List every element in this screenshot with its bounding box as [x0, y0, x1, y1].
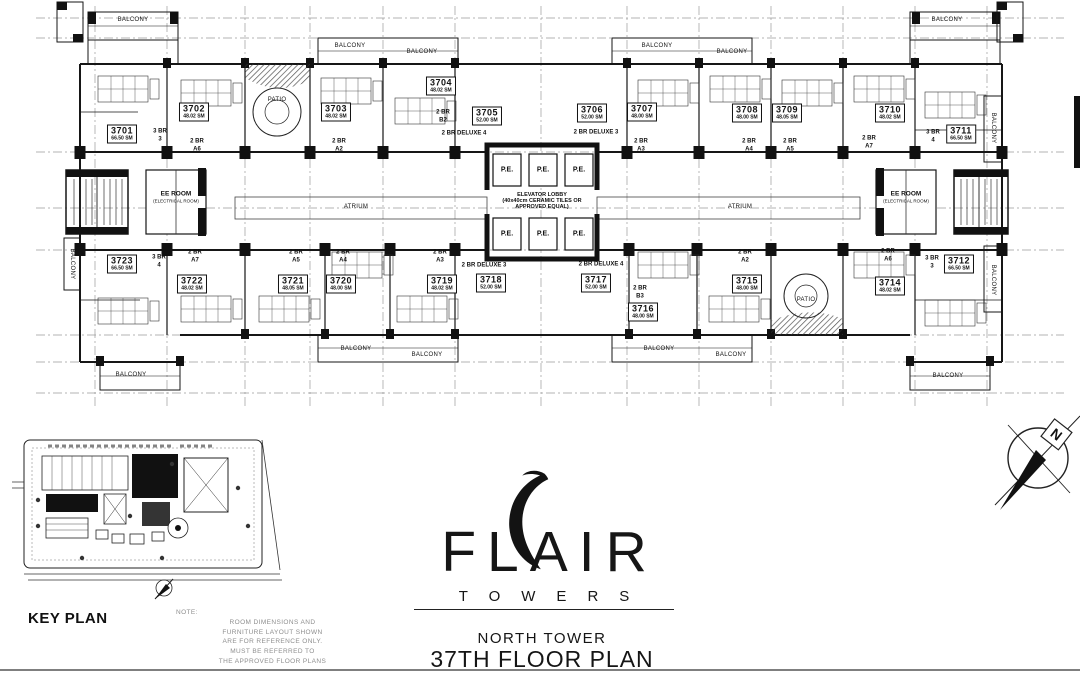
key-plan-title: KEY PLAN — [28, 610, 108, 627]
north-compass: N — [995, 416, 1080, 510]
brand-rule — [414, 609, 674, 610]
floor-title: 37TH FLOOR PLAN — [402, 646, 682, 673]
note-line-2: ROOM DIMENSIONS AND — [180, 618, 365, 628]
note-line-6: THE APPROVED FLOOR PLANS — [180, 657, 365, 667]
brand-subname: TOWERS — [414, 588, 674, 605]
stairs-right — [954, 170, 1008, 234]
note-line-1: NOTE: — [176, 608, 365, 618]
key-plan-north-arrow — [155, 579, 173, 599]
elevator-lobby-line3: APPROVED EQUAL) — [502, 204, 581, 210]
general-note: NOTE:ROOM DIMENSIONS ANDFURNITURE LAYOUT… — [180, 608, 365, 667]
key-plan-map — [12, 440, 282, 599]
ee-room-left — [146, 168, 206, 236]
floor-plan-sheet: N 370166.50 SM3 BR3370248.02 SM2 BRA6370… — [0, 0, 1080, 674]
elevator-lobby-label: ELEVATOR LOBBY (40x40cm CERAMIC TILES OR… — [502, 192, 581, 210]
ee-room-right — [876, 168, 936, 236]
brand-logo: FLAIR TOWERS — [414, 468, 674, 610]
note-line-5: MUST BE REFERRED TO — [180, 647, 365, 657]
stairs-left — [66, 170, 128, 234]
logo-swoosh-icon — [498, 470, 554, 572]
note-line-4: ARE FOR REFERENCE ONLY. — [180, 637, 365, 647]
note-line-3: FURNITURE LAYOUT SHOWN — [180, 628, 365, 638]
tower-title: NORTH TOWER — [402, 630, 682, 647]
